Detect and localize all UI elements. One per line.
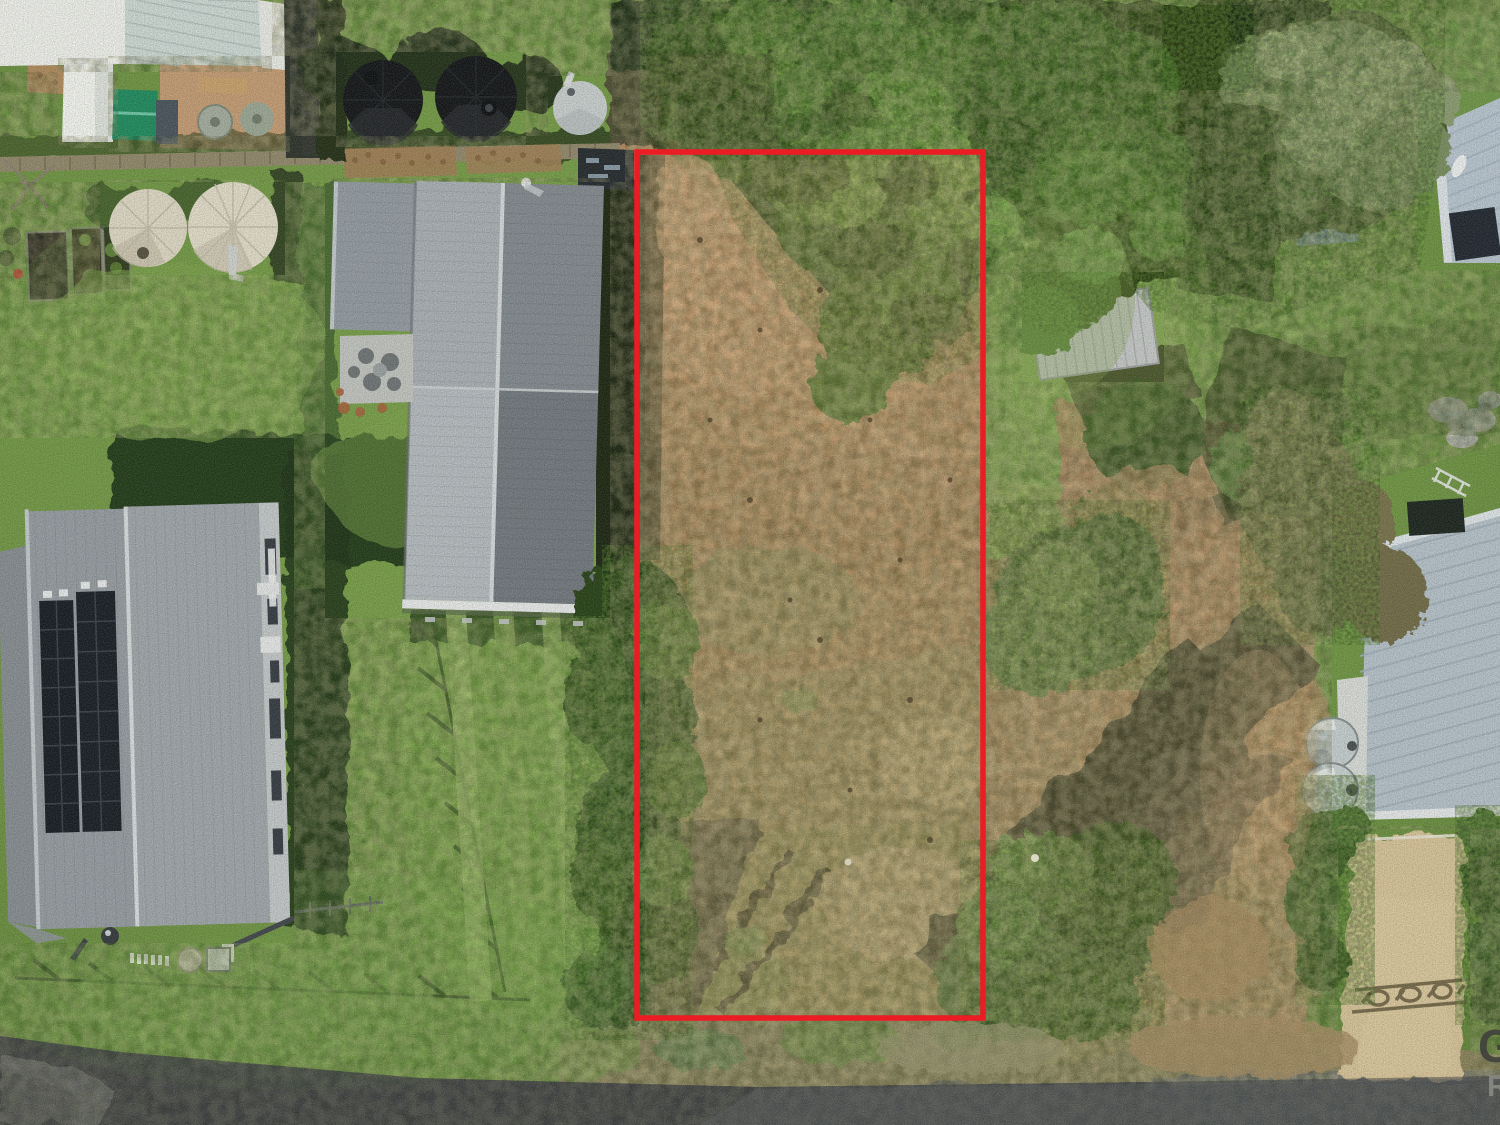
svg-text:G: G bbox=[1478, 1020, 1500, 1072]
svg-text:R: R bbox=[1487, 1070, 1500, 1103]
